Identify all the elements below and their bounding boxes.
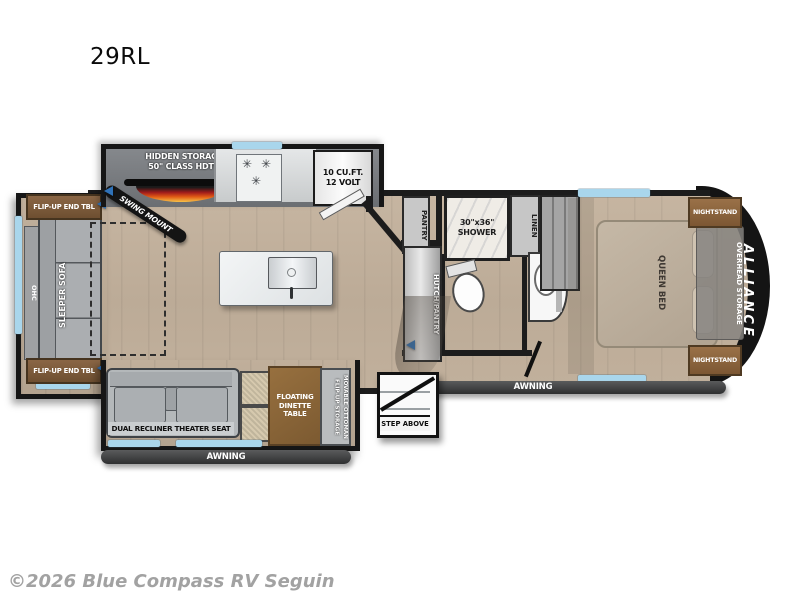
nightstand-bottom: NIGHTSTAND <box>688 345 742 376</box>
shower-label: SHOWER <box>458 228 497 238</box>
queen-bed-label: QUEEN BED <box>650 238 666 328</box>
rear-slide-window <box>15 216 22 334</box>
recliner-seat <box>176 387 228 423</box>
burner-icon: ✳ <box>251 175 261 187</box>
shower-size-label: 30"x36" <box>460 218 494 228</box>
alliance-marker-icon <box>104 186 113 196</box>
door-slide-window <box>108 440 160 447</box>
kitchen-slide-window <box>232 142 282 149</box>
nightstand-top: NIGHTSTAND <box>688 197 742 228</box>
sink-drain-icon <box>287 268 296 277</box>
tv-icon <box>124 179 218 186</box>
end-table-bottom: FLIP-UP END TBL <box>26 358 102 384</box>
sofa-backrest <box>40 208 56 380</box>
shower-stall: 30"x36" SHOWER <box>444 195 510 261</box>
copyright-text: ©2026 Blue Compass RV Seguin <box>8 571 335 592</box>
burner-icon: ✳ <box>242 158 252 170</box>
wall-vanity-back <box>522 254 527 352</box>
bedroom-top-window <box>578 189 650 197</box>
theater-seat-label: DUAL RECLINER THEATER SEAT <box>108 422 234 435</box>
recliner-seat <box>114 387 166 423</box>
model-title: 29RL <box>90 44 150 70</box>
slide-travel-outline <box>90 222 166 356</box>
overhead-storage: OVERHEAD STORAGE <box>696 226 744 340</box>
floorplan-canvas: 29RL ©2026 Blue Compass RV Seguin ALLIAN… <box>0 0 800 600</box>
stove-cooktop: ✳ ✳ ✳ <box>236 154 282 202</box>
awning-right: AWNING <box>430 381 726 394</box>
step-above-label: STEP ABOVE <box>380 415 430 431</box>
dinette-table: FLOATING DINETTE TABLE <box>268 366 322 446</box>
fridge-volt-label: 12 VOLT <box>326 178 361 188</box>
theater-backrest <box>110 372 232 387</box>
bedroom-step-shade <box>568 198 594 374</box>
movable-ottoman: MOVABLE OTTOMAN FLIP-UP STORAGE <box>320 368 351 446</box>
faucet-icon <box>290 287 293 299</box>
burner-icon: ✳ <box>261 158 271 170</box>
linen-closet: LINEN <box>510 195 540 257</box>
end-table-top: FLIP-UP END TBL <box>26 194 102 220</box>
fridge-size-label: 10 CU.FT. <box>323 168 363 178</box>
overhead-cabinet: OHC <box>24 226 39 360</box>
door-slide-window <box>176 440 262 447</box>
awning-left: AWNING <box>101 450 351 464</box>
sofa-label: SLEEPER SOFA <box>58 240 72 350</box>
